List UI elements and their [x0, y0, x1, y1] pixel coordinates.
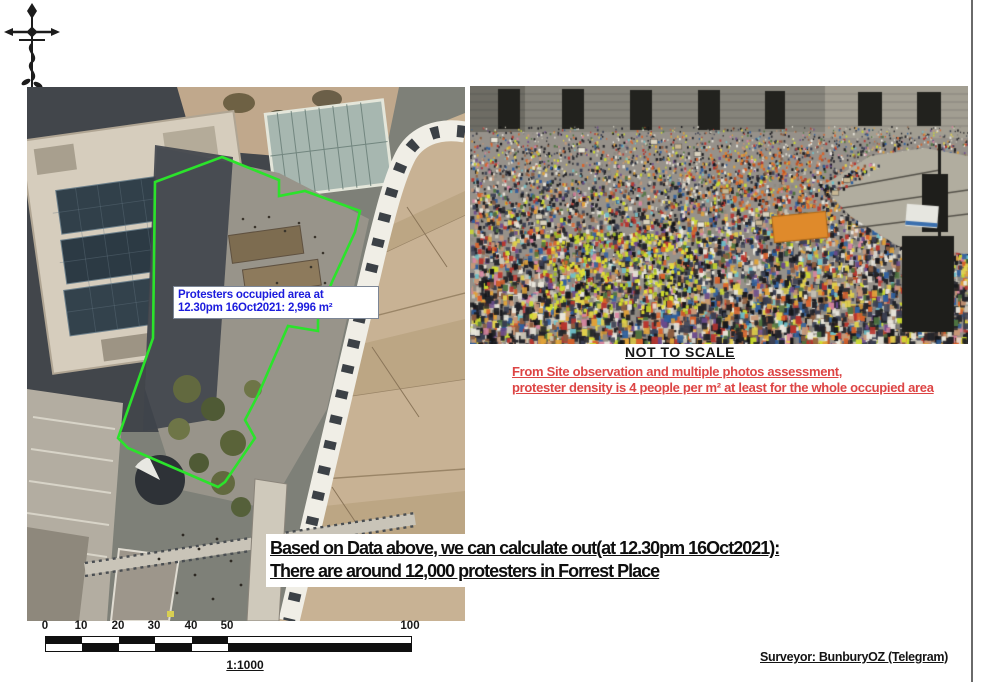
occupied-area-label: Protesters occupied area at 12.30pm 16Oc…: [173, 286, 379, 319]
scale-tick-40: 40: [176, 620, 206, 632]
scale-tick-100: 100: [395, 620, 425, 632]
page-edge-rule: [971, 0, 973, 682]
density-note-line2: protester density is 4 people per m² at …: [512, 380, 934, 395]
crowd-photo: [470, 86, 968, 344]
north-arrow-icon: [4, 2, 60, 96]
scale-tick-0: 0: [30, 620, 60, 632]
not-to-scale-caption: NOT TO SCALE: [560, 344, 800, 360]
occupied-area-label-line1: Protesters occupied area at: [178, 289, 374, 302]
scale-tick-10: 10: [66, 620, 96, 632]
scale-bar-graphic: [45, 636, 412, 652]
surveyor-credit: Surveyor: BunburyOZ (Telegram): [760, 650, 948, 664]
density-note-line1: From Site observation and multiple photo…: [512, 364, 842, 379]
scale-bar: 0 10 20 30 40 50 100 1:1000: [40, 620, 440, 678]
conclusion-text: Based on Data above, we can calculate ou…: [266, 534, 785, 587]
density-note: From Site observation and multiple photo…: [512, 364, 934, 396]
scale-ratio: 1:1000: [170, 658, 320, 672]
scale-tick-30: 30: [139, 620, 169, 632]
occupied-area-label-line2: 12.30pm 16Oct2021: 2,996 m²: [178, 302, 374, 315]
conclusion-line2: There are around 12,000 protesters in Fo…: [270, 561, 659, 581]
conclusion-line1: Based on Data above, we can calculate ou…: [270, 538, 779, 558]
survey-report-page: Protesters occupied area at 12.30pm 16Oc…: [0, 0, 982, 689]
scale-tick-20: 20: [103, 620, 133, 632]
scale-tick-50: 50: [212, 620, 242, 632]
